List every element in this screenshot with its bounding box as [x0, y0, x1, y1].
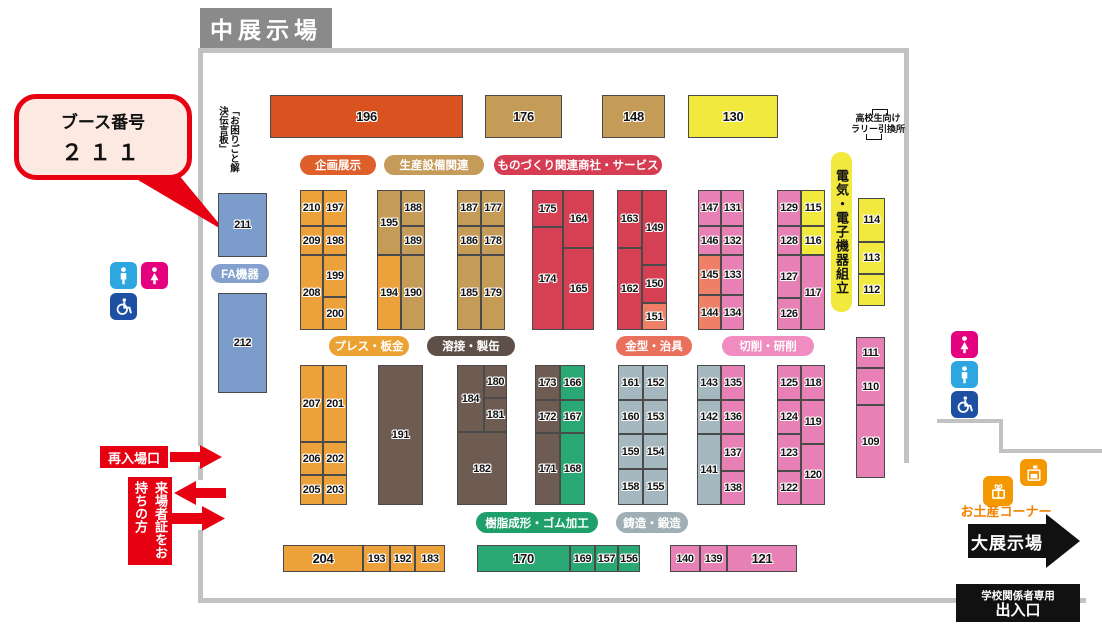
booth-153: 153 [643, 400, 668, 434]
label-denki-denshi-kumitate: 電気・電子機器組立 [831, 152, 852, 312]
booth-145: 145 [698, 255, 721, 295]
booth-176: 176 [485, 95, 562, 138]
male-toilet-icon-left [110, 262, 137, 289]
booth-175: 175 [532, 190, 563, 227]
booth-127: 127 [777, 255, 801, 298]
booth-173: 173 [535, 365, 560, 400]
label-kikaku-tenji: 企画展示 [300, 155, 376, 175]
highschool-rally-line1: 高校生向け [840, 113, 916, 124]
booth-124: 124 [777, 400, 801, 434]
booth-183: 183 [415, 545, 445, 572]
booth-193: 193 [363, 545, 390, 572]
booth-155: 155 [643, 469, 668, 505]
wall-left-lower [198, 530, 203, 600]
big-hall-arrow: 大展示場 [968, 524, 1046, 558]
booth-149: 149 [642, 190, 667, 265]
booth-126: 126 [777, 298, 801, 330]
booth-116: 116 [801, 226, 825, 255]
booth-185: 185 [457, 255, 481, 330]
booth-129: 129 [777, 190, 801, 226]
booth-152: 152 [643, 365, 668, 400]
booth-136: 136 [721, 400, 745, 434]
booth-184: 184 [457, 365, 484, 432]
booth-166: 166 [560, 365, 585, 400]
booth-146: 146 [698, 226, 721, 255]
booth-161: 161 [618, 365, 643, 400]
booth-182: 182 [457, 432, 507, 505]
booth-123: 123 [777, 434, 801, 471]
booth-111: 111 [856, 337, 885, 368]
booth-139: 139 [700, 545, 727, 572]
floor-map: 中展示場 ブース番号 ２１１ 「お困りごと解決伝言板」 高校生向け ラリー引換所… [0, 0, 1102, 628]
booth-132: 132 [721, 226, 744, 255]
booth-142: 142 [697, 400, 721, 434]
booth-119: 119 [801, 400, 825, 444]
booth-131: 131 [721, 190, 744, 226]
wall-step-h2 [999, 449, 1102, 453]
label-monodukuri-shosha: ものづくり関連商社・サービス [494, 155, 662, 175]
booth-203: 203 [323, 475, 347, 505]
booth-179: 179 [481, 255, 505, 330]
booth-210: 210 [300, 190, 323, 226]
wall-bottom [198, 598, 1086, 603]
booth-189: 189 [401, 226, 425, 255]
booth-177: 177 [481, 190, 505, 226]
label-yosetsu-seikan: 溶接・製缶 [427, 336, 515, 356]
booth-160: 160 [618, 400, 643, 434]
booth-186: 186 [457, 226, 481, 255]
booth-199: 199 [323, 255, 347, 297]
booth-158: 158 [618, 469, 643, 505]
booth-122: 122 [777, 471, 801, 505]
female-toilet-icon-left [141, 262, 168, 289]
booth-141: 141 [697, 434, 721, 505]
booth-121: 121 [727, 545, 797, 572]
booth-115: 115 [801, 190, 825, 226]
booth-130: 130 [688, 95, 778, 138]
booth-181: 181 [484, 398, 507, 432]
booth-191: 191 [378, 365, 423, 505]
booth-128: 128 [777, 226, 801, 255]
highschool-rally-label: 高校生向け ラリー引換所 [840, 113, 916, 136]
booth-134: 134 [721, 295, 744, 330]
booth-170: 170 [477, 545, 570, 572]
label-fa-kiki: FA機器 [211, 264, 269, 283]
visitor-arrow-right [170, 506, 225, 531]
highschool-rally-line2: ラリー引換所 [840, 124, 916, 135]
label-kanagata-jigu: 金型・治具 [616, 336, 692, 356]
booth-135: 135 [721, 365, 745, 400]
wheelchair-icon-left [110, 293, 137, 320]
big-hall-arrow-head [1046, 514, 1080, 568]
booth-167: 167 [560, 400, 585, 433]
booth-137: 137 [721, 434, 745, 471]
booth-163: 163 [617, 190, 642, 248]
booth-162: 162 [617, 248, 642, 330]
booth-125: 125 [777, 365, 801, 400]
booth-174: 174 [532, 227, 563, 330]
school-gate-line1: 学校関係者専用 [956, 588, 1080, 603]
booth-138: 138 [721, 471, 745, 505]
visitor-arrow-left [174, 481, 226, 505]
label-sessaku-kensaku: 切削・研削 [722, 336, 814, 356]
booth-164: 164 [563, 190, 594, 248]
wall-step-v [999, 419, 1003, 453]
booth-112: 112 [858, 274, 885, 306]
booth-143: 143 [697, 365, 721, 400]
booth-201: 201 [323, 365, 347, 442]
reentry-gate-label: 再入場口 [100, 446, 168, 468]
booth-187: 187 [457, 190, 481, 226]
label-jushi-gomu: 樹脂成形・ゴム加工 [476, 512, 598, 533]
booth-195: 195 [377, 190, 401, 255]
booth-190: 190 [401, 255, 425, 330]
booth-151: 151 [642, 303, 667, 330]
wall-right [904, 48, 909, 463]
booth-180: 180 [484, 365, 507, 398]
male-toilet-icon-right [951, 361, 978, 388]
booth-196: 196 [270, 95, 463, 138]
booth-114: 114 [858, 198, 885, 242]
booth-140: 140 [670, 545, 700, 572]
booth-150: 150 [642, 265, 667, 303]
booth-159: 159 [618, 434, 643, 469]
female-toilet-icon-right [951, 331, 978, 358]
wall-left-upper [198, 48, 203, 446]
booth-172: 172 [535, 400, 560, 433]
callout-number: ２１１ [61, 135, 145, 167]
school-gate-line2: 出入口 [956, 603, 1080, 619]
booth-117: 117 [801, 255, 825, 330]
booth-165: 165 [563, 248, 594, 330]
booth-169: 169 [570, 545, 595, 572]
booth-192: 192 [390, 545, 415, 572]
booth-109: 109 [856, 405, 885, 478]
visitor-pass-label: 来場者証をお持ちの方 [128, 477, 172, 565]
label-press-bankin: プレス・板金 [329, 336, 409, 356]
booth-211: 211 [218, 193, 267, 257]
booth-202: 202 [323, 442, 347, 475]
booth-205: 205 [300, 475, 323, 505]
label-chuzo-tanzo: 鋳造・鍛造 [616, 512, 688, 533]
booth-206: 206 [300, 442, 323, 475]
wall-top [200, 48, 908, 53]
booth-204: 204 [283, 545, 363, 572]
booth-207: 207 [300, 365, 323, 442]
booth-120: 120 [801, 444, 825, 505]
booth-212: 212 [218, 293, 267, 393]
booth-144: 144 [698, 295, 721, 330]
reentry-arrow-right [170, 445, 222, 469]
booth-197: 197 [323, 190, 347, 226]
booth-147: 147 [698, 190, 721, 226]
booth-133: 133 [721, 255, 744, 295]
booth-208: 208 [300, 255, 323, 330]
wheelchair-icon-right [951, 391, 978, 418]
label-seisan-setsubi: 生産設備関連 [384, 155, 484, 175]
hall-title: 中展示場 [200, 8, 332, 48]
booth-188: 188 [401, 190, 425, 226]
trouble-board-label: 「お困りごと解決伝言板」 [217, 106, 239, 176]
hall-title-text: 中展示場 [210, 11, 322, 45]
booth-211-callout: ブース番号 ２１１ [14, 94, 192, 180]
booth-148: 148 [602, 95, 665, 138]
booth-209: 209 [300, 226, 323, 255]
booth-110: 110 [856, 368, 885, 405]
booth-156: 156 [618, 545, 640, 572]
booth-171: 171 [535, 433, 560, 505]
callout-pointer [130, 172, 230, 236]
gift-icon [983, 476, 1013, 506]
booth-194: 194 [377, 255, 401, 330]
booth-200: 200 [323, 297, 347, 330]
big-hall-label: 大展示場 [971, 529, 1043, 554]
school-staff-gate: 学校関係者専用 出入口 [956, 584, 1080, 622]
callout-label: ブース番号 [61, 108, 145, 133]
booth-198: 198 [323, 226, 347, 255]
booth-168: 168 [560, 433, 585, 505]
booth-113: 113 [858, 242, 885, 274]
wall-step-h1 [937, 419, 1001, 423]
shop-icon [1020, 459, 1047, 486]
booth-157: 157 [595, 545, 618, 572]
booth-118: 118 [801, 365, 825, 400]
booth-154: 154 [643, 434, 668, 469]
booth-178: 178 [481, 226, 505, 255]
